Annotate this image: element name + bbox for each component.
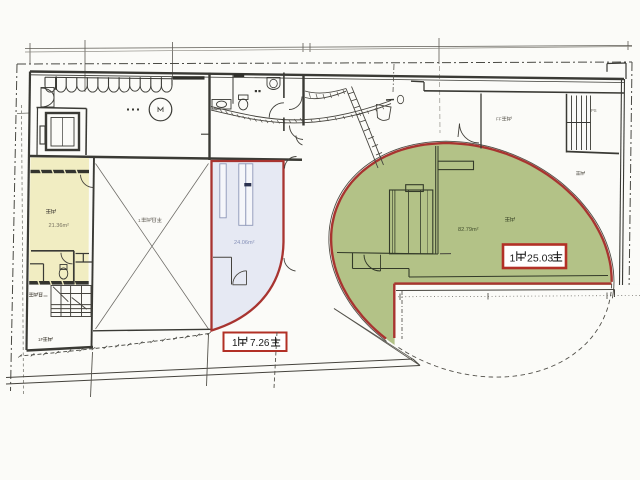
svg-text:7.26: 7.26: [250, 338, 270, 349]
svg-text:FF: FF: [496, 117, 502, 122]
svg-text:1F: 1F: [38, 337, 44, 342]
svg-text:1: 1: [232, 338, 238, 349]
svg-text:1: 1: [138, 218, 141, 224]
svg-text:PS: PS: [591, 108, 597, 113]
svg-text:1: 1: [510, 253, 516, 265]
svg-text:21.36m²: 21.36m²: [49, 223, 70, 229]
svg-text:24.06m²: 24.06m²: [234, 240, 255, 246]
svg-text:82.79m²: 82.79m²: [458, 227, 479, 233]
svg-text:25.03: 25.03: [527, 253, 553, 265]
